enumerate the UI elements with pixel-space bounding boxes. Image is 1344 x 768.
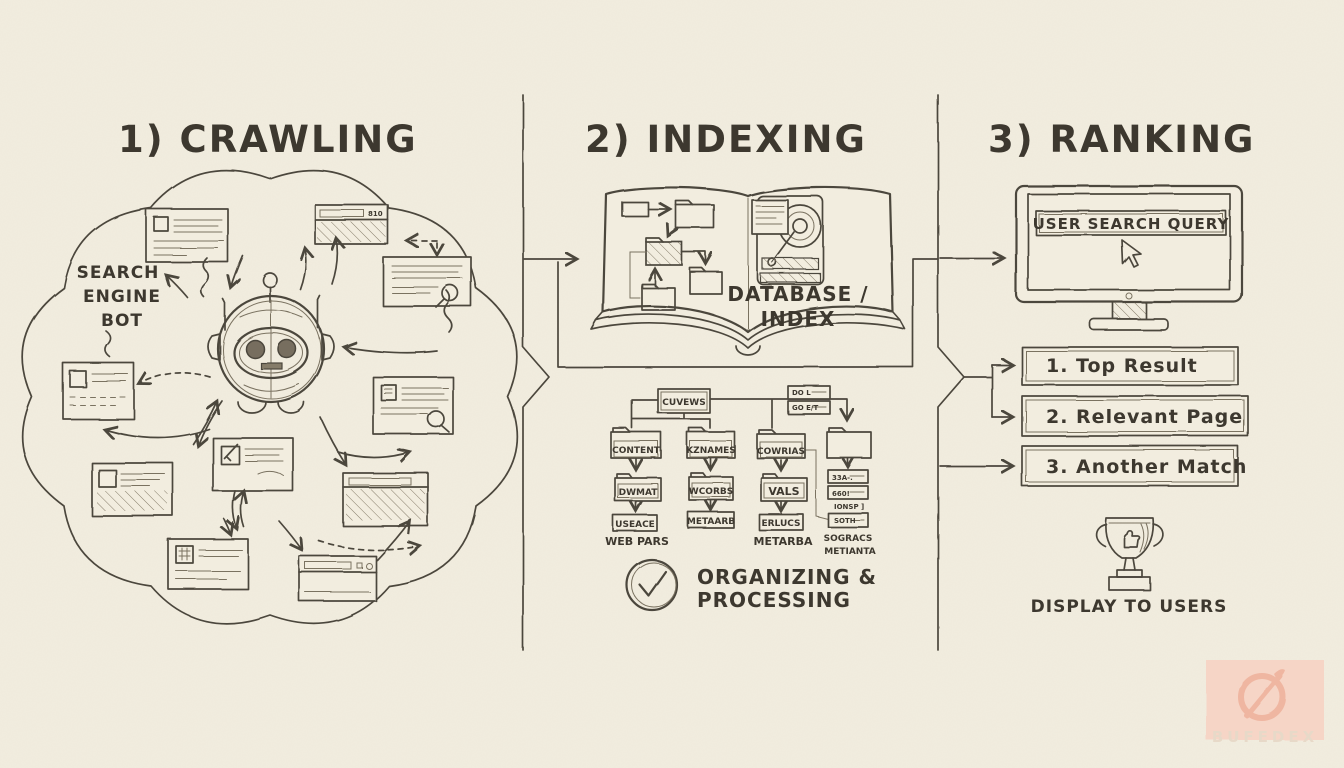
svg-text:DATABASE /: DATABASE / <box>727 282 868 306</box>
crawling-title: 1) CRAWLING <box>118 118 418 161</box>
tree-root-label: CUVEWS <box>662 398 705 408</box>
right-box-label-1: 33A-. <box>832 474 853 482</box>
display-users-label: DISPLAY TO USERS <box>1031 597 1228 617</box>
page-thumbnail-7 <box>92 463 173 516</box>
svg-text:SEARCH: SEARCH <box>77 263 160 283</box>
page-thumbnail-3 <box>383 257 471 307</box>
bot-eye-left <box>246 340 264 358</box>
leaf-label-1: USEACE <box>615 520 655 530</box>
folder-label-cowrias: COWRIAS <box>757 447 805 457</box>
bot-eye-right <box>278 340 296 358</box>
page-thumbnail-4 <box>63 363 134 419</box>
right-box-label-3: IONSP ] <box>834 503 864 511</box>
svg-text:BOT: BOT <box>101 311 143 331</box>
svg-text:PROCESSING: PROCESSING <box>697 588 851 612</box>
result-label-2: 2. Relevant Page <box>1046 406 1243 428</box>
subfolder-label-3: VALS <box>768 485 799 498</box>
leaf-label-3: ERLUCS <box>761 519 800 529</box>
search-query-label: USER SEARCH QUERY <box>1033 215 1230 233</box>
subfolder-label-2: WCORBS <box>689 487 733 497</box>
right-box-label-4: SOTH <box>834 517 856 525</box>
side-box-label-2: GO E/T <box>792 404 818 412</box>
result-label-1: 1. Top Result <box>1046 355 1198 377</box>
bot-mouth <box>261 363 282 369</box>
indexing-title: 2) INDEXING <box>585 118 867 161</box>
page-thumbnail-8 <box>343 473 428 526</box>
page-thumbnail-1 <box>146 209 228 262</box>
right-box-label-2: 660! <box>832 490 850 498</box>
folder-label-keywords: KZNAMES <box>686 446 736 456</box>
folder-label-content: CONTENT <box>612 446 661 456</box>
page-thumbnail-10 <box>299 556 376 601</box>
ranking-title: 3) RANKING <box>988 118 1255 161</box>
svg-text:ORGANIZING &: ORGANIZING & <box>697 565 877 589</box>
tree-caption-2: METARBA <box>754 535 813 548</box>
watermark-text: BUFEDEX <box>1212 728 1318 746</box>
tree-caption-3: SOGRACS <box>824 534 873 544</box>
page-thumbnail-5 <box>213 438 293 491</box>
side-box-label-1: DO L <box>792 389 811 397</box>
page-thumbnail-6 <box>373 377 453 434</box>
leaf-label-2: METAARB <box>687 517 735 527</box>
svg-text:ENGINE: ENGINE <box>83 287 161 307</box>
tree-caption-4: METIANTA <box>824 547 876 557</box>
seo-process-diagram: 1) CRAWLING 2) INDEXING 3) RANKING SEARC… <box>0 0 1344 768</box>
browser-badge: 810 <box>368 210 383 218</box>
folder-plain <box>827 428 871 458</box>
tree-caption-1: WEB PARS <box>605 535 669 548</box>
organizing-label: ORGANIZING & PROCESSING <box>697 565 877 612</box>
result-label-3: 3. Another Match <box>1046 456 1247 478</box>
subfolder-label-1: DWMAT <box>619 488 659 498</box>
page-thumbnail-9 <box>168 539 248 589</box>
svg-text:INDEX: INDEX <box>761 307 836 331</box>
